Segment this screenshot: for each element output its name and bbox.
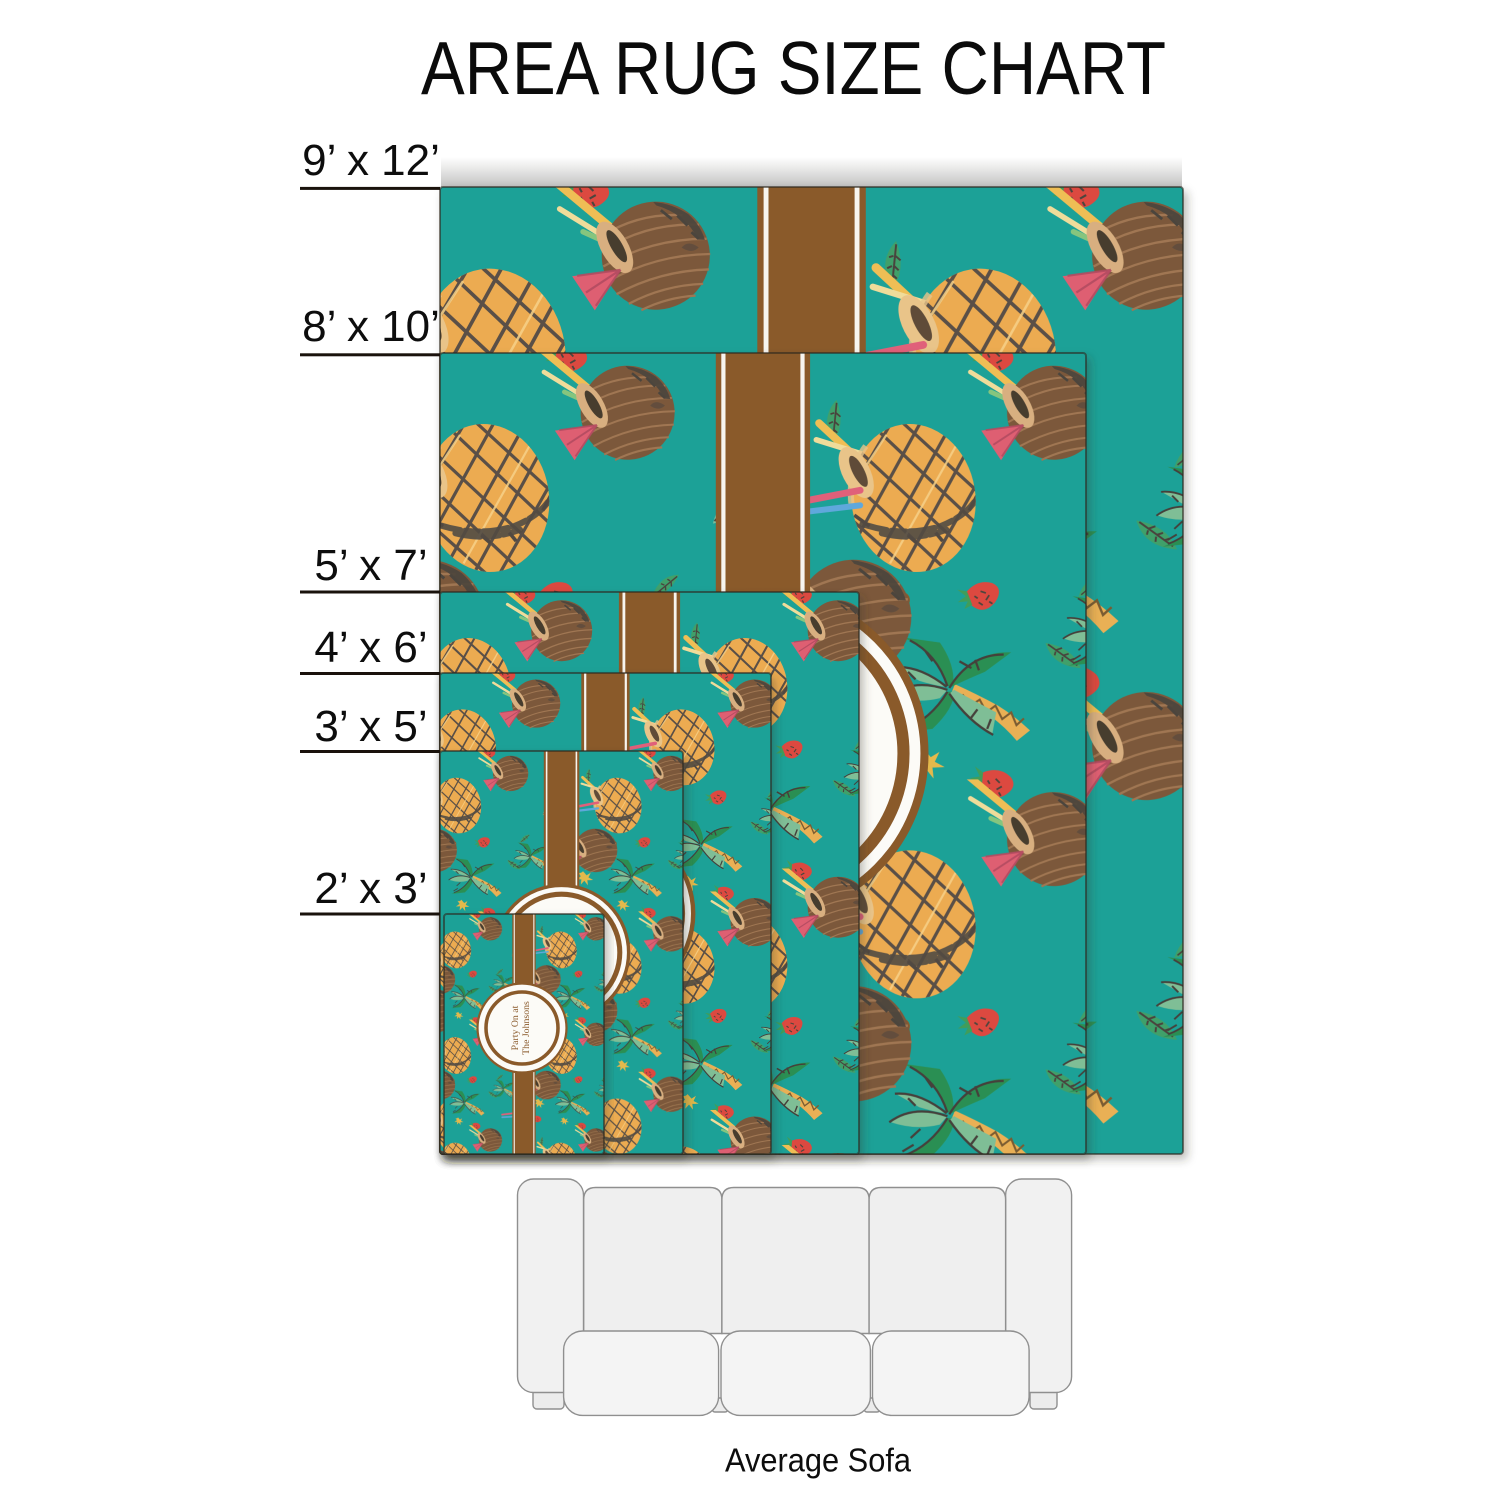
- svg-text:5’ x 7’: 5’ x 7’: [314, 541, 427, 590]
- svg-text:3’ x 5’: 3’ x 5’: [314, 702, 427, 751]
- svg-text:4’ x 6’: 4’ x 6’: [314, 623, 427, 672]
- svg-text:9’ x 12’: 9’ x 12’: [302, 136, 440, 185]
- svg-text:8’ x 10’: 8’ x 10’: [302, 302, 440, 351]
- svg-text:Average Sofa: Average Sofa: [725, 1442, 912, 1479]
- svg-text:AREA RUG SIZE CHART: AREA RUG SIZE CHART: [421, 27, 1166, 111]
- svg-text:The Johnsons: The Johnsons: [521, 1001, 532, 1055]
- svg-text:Party On at: Party On at: [510, 1005, 521, 1050]
- svg-text:2’ x 3’: 2’ x 3’: [314, 864, 427, 913]
